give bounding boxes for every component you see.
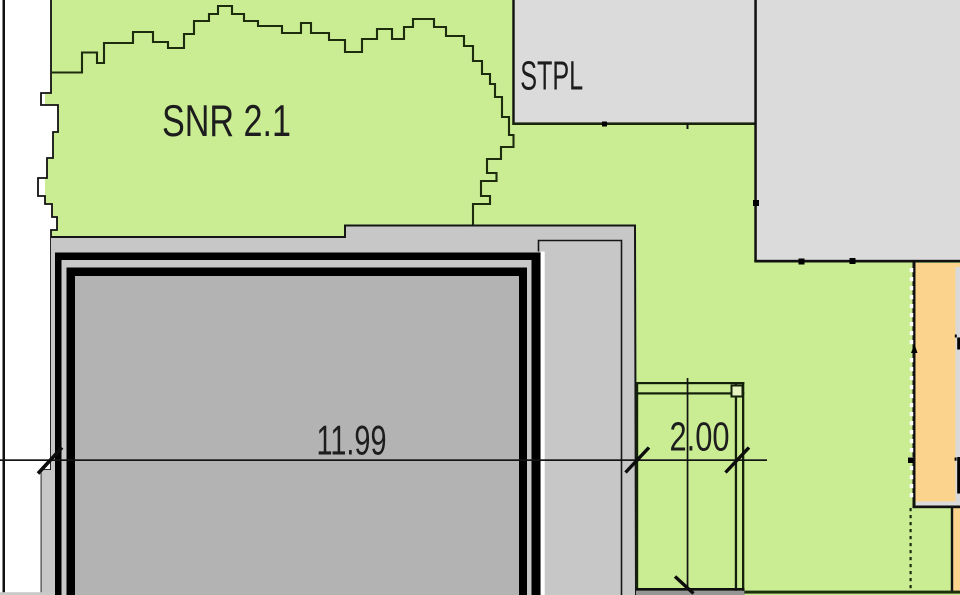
svg-text:11.99: 11.99 — [317, 417, 387, 464]
svg-text:2.00: 2.00 — [670, 414, 730, 460]
svg-text:STPL: STPL — [520, 53, 583, 99]
svg-text:SNR 2.1: SNR 2.1 — [162, 97, 291, 146]
